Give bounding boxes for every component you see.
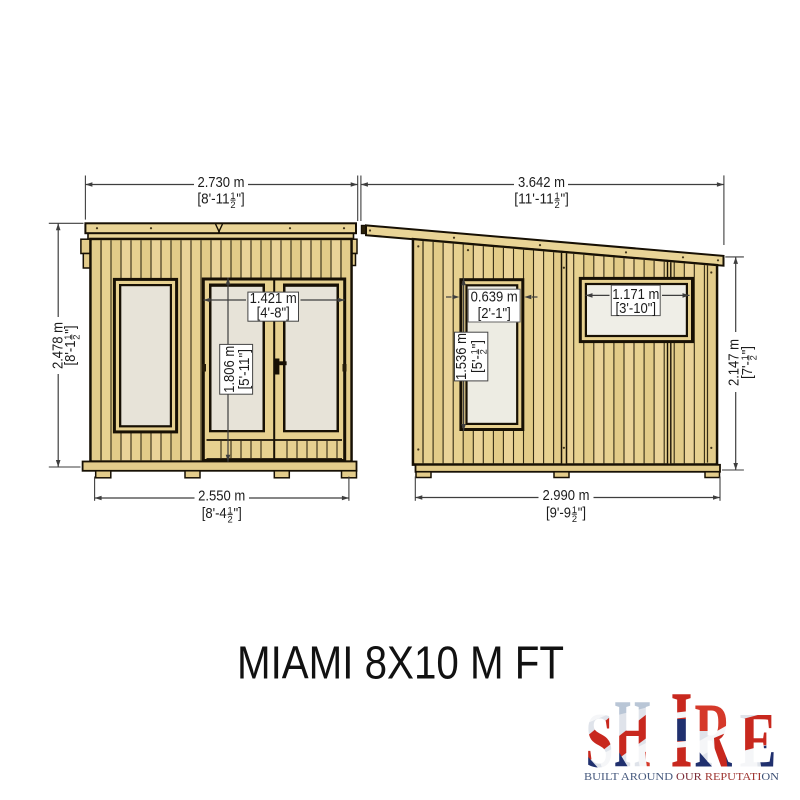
svg-text:2: 2 [478,349,488,354]
svg-text:"]: "] [62,325,79,333]
svg-text:2.550 m: 2.550 m [198,488,245,505]
svg-text:2: 2 [749,355,759,360]
svg-text:2: 2 [228,514,233,524]
svg-text:2: 2 [72,335,82,340]
svg-text:[5'-11"]: [5'-11"] [236,349,253,390]
svg-text:[8'-4: [8'-4 [202,505,227,522]
svg-text:[11'-11: [11'-11 [514,190,554,207]
svg-text:[2'-1"]: [2'-1"] [478,305,511,322]
svg-text:"]: "] [236,190,244,207]
svg-text:0.639 m: 0.639 m [471,289,518,306]
svg-text:"]: "] [233,505,241,522]
svg-text:"]: "] [578,504,586,521]
svg-text:"]: "] [739,346,756,354]
svg-text:"]: "] [560,190,568,207]
svg-text:[5'-: [5'- [469,355,486,373]
svg-text:1.536 m: 1.536 m [453,333,470,380]
svg-text:3.642 m: 3.642 m [518,174,565,191]
svg-text:[8'-11: [8'-11 [197,190,229,207]
svg-text:[3'-10"]: [3'-10"] [616,300,657,317]
svg-text:2: 2 [555,200,560,210]
svg-text:2: 2 [572,514,577,524]
svg-text:2: 2 [230,200,235,210]
svg-text:2.990 m: 2.990 m [542,487,589,504]
svg-text:BUILT AROUND OUR REPUTATION: BUILT AROUND OUR REPUTATION [584,771,779,783]
svg-text:MIAMI 8X10 M FT: MIAMI 8X10 M FT [237,637,564,689]
svg-text:[4'-8"]: [4'-8"] [257,305,290,322]
svg-text:[8'-1: [8'-1 [62,341,79,366]
svg-text:[7'-: [7'- [739,361,756,379]
svg-text:"]: "] [469,340,486,348]
svg-text:2.730 m: 2.730 m [197,174,244,191]
svg-text:[9'-9: [9'-9 [546,504,571,521]
